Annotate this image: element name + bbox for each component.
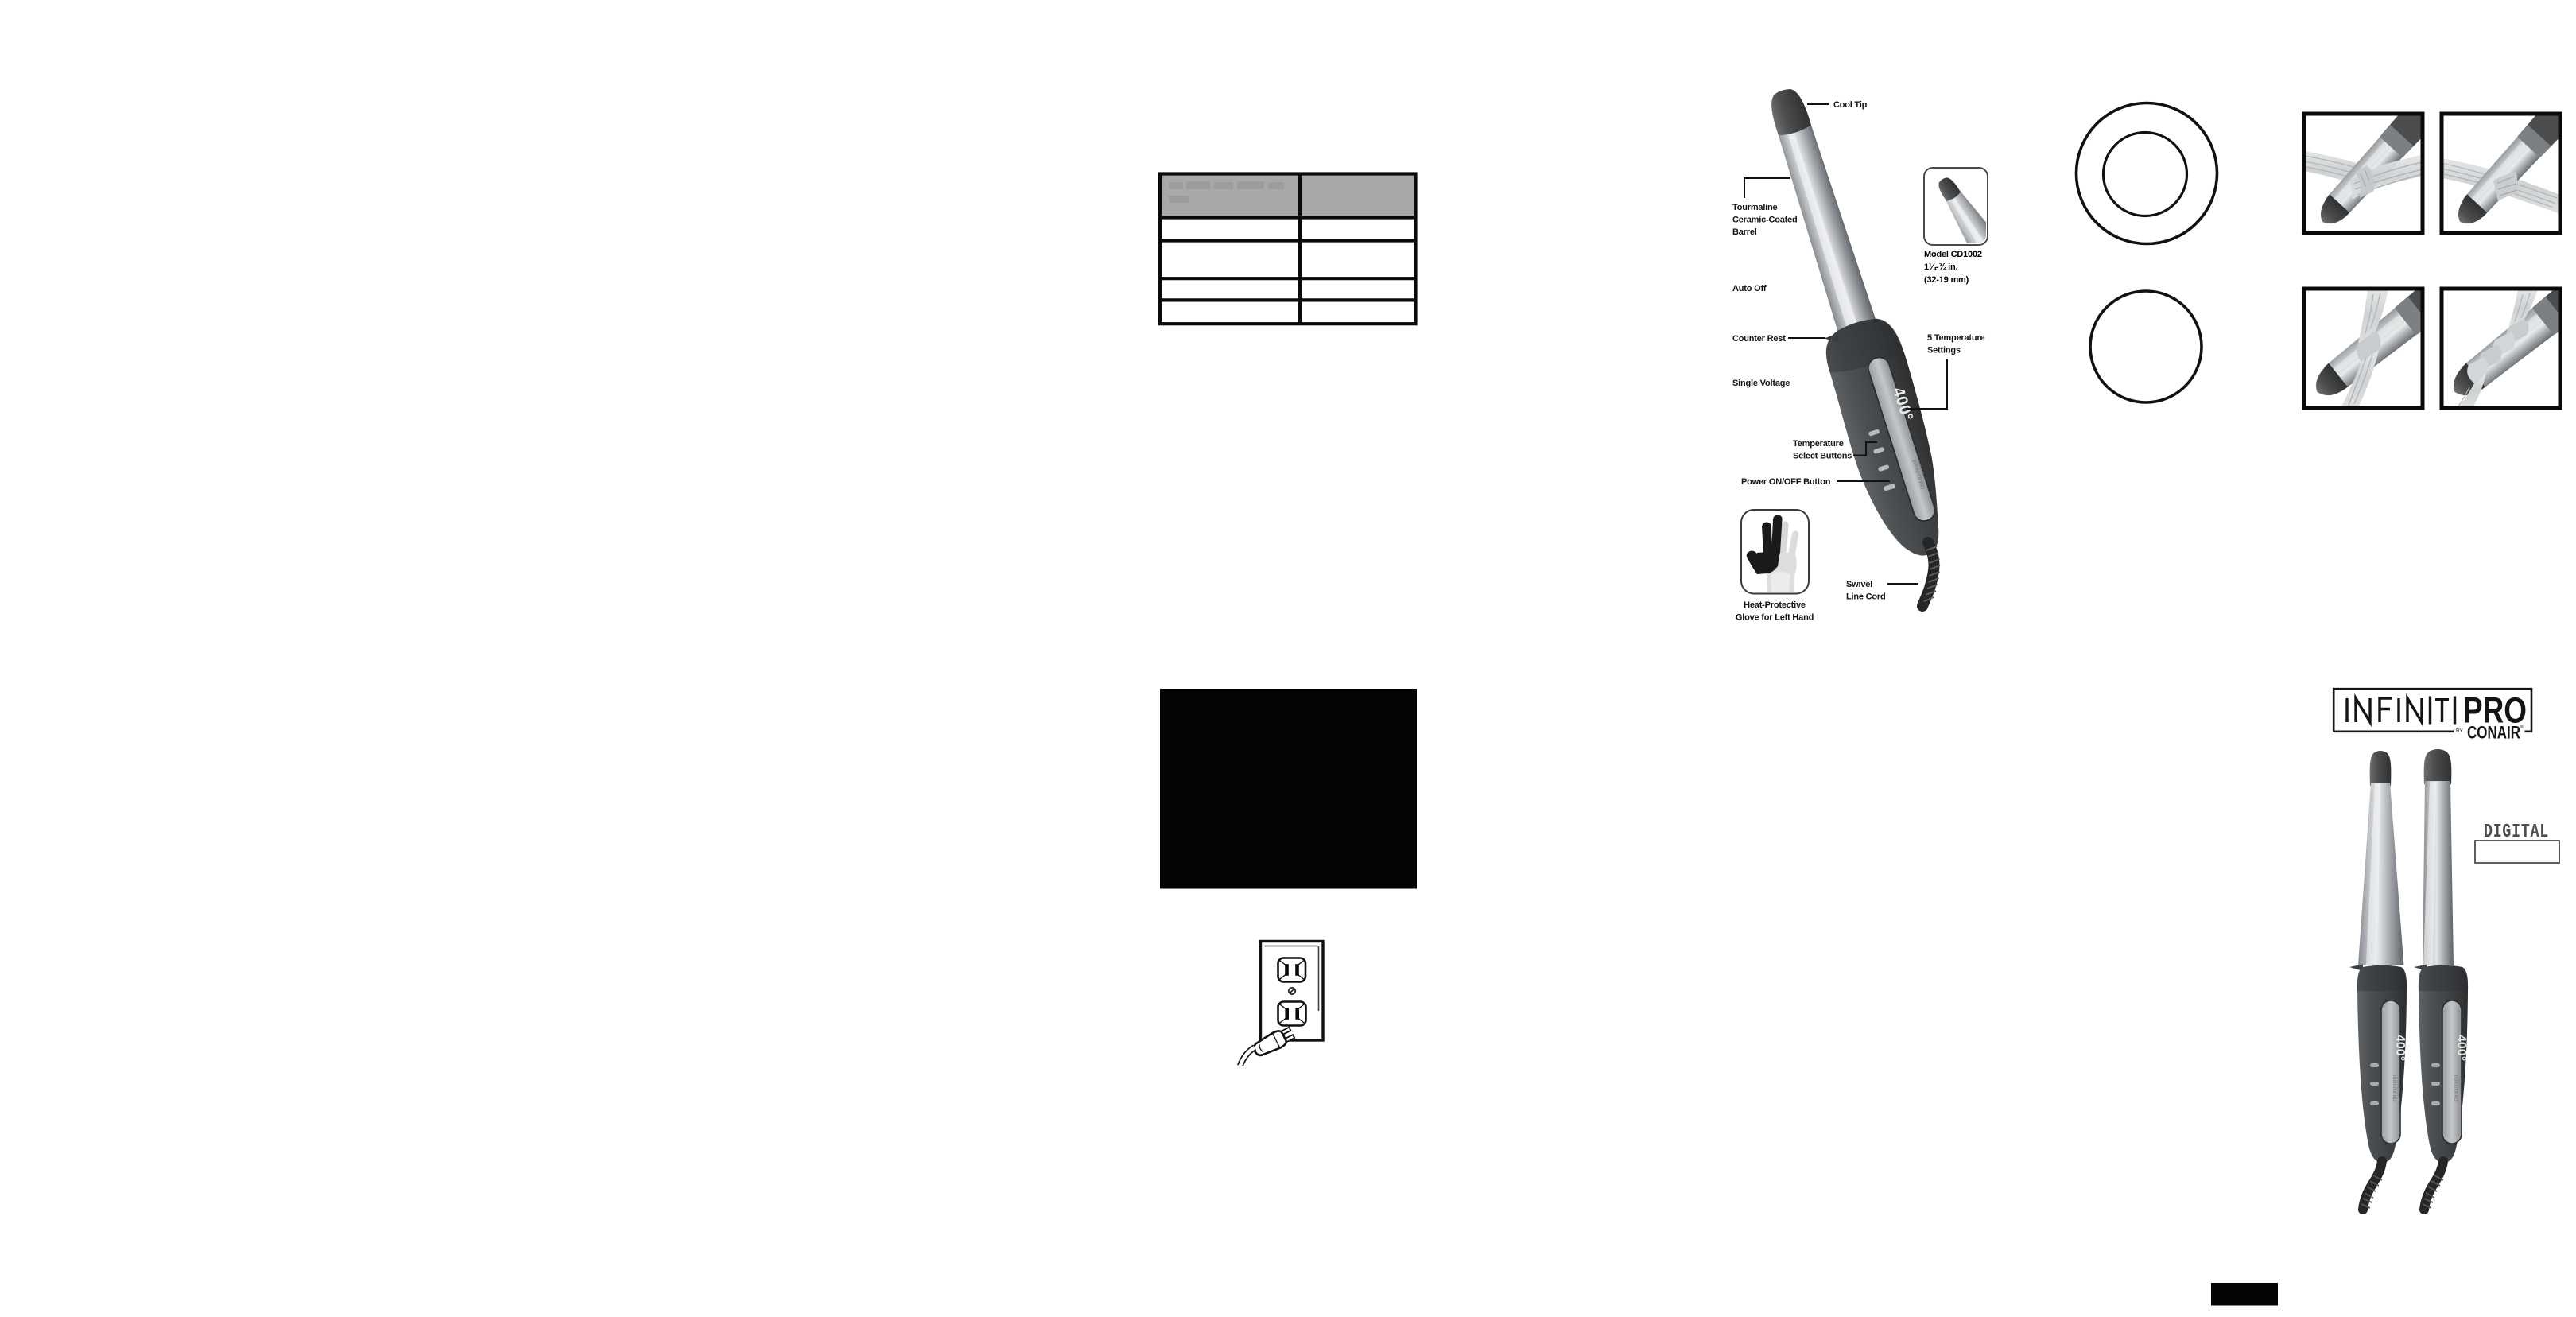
svg-text:Select Buttons: Select Buttons [1793,452,1852,461]
svg-text:CONAIR: CONAIR [2458,1077,2462,1091]
svg-text:1¼-¾ in.: 1¼-¾ in. [1924,262,1958,272]
svg-text:Cool Tip: Cool Tip [1833,100,1868,110]
svg-text:CONAIR: CONAIR [2467,723,2520,743]
svg-text:Glove for Left Hand: Glove for Left Hand [1736,613,1814,623]
svg-text:®: ® [2520,725,2524,730]
svg-text:Model CD1002: Model CD1002 [1924,250,1982,259]
svg-text:Power ON/OFF Button: Power ON/OFF Button [1741,477,1831,487]
svg-text:Heat-Protective: Heat-Protective [1744,600,1806,610]
svg-text:400°: 400° [2393,1035,2407,1061]
svg-text:Auto Off: Auto Off [1732,284,1767,293]
svg-text:Temperature: Temperature [1793,439,1844,449]
svg-text:Swivel: Swivel [1846,580,1872,589]
svg-text:Line Cord: Line Cord [1846,592,1886,602]
svg-text:INFINITIPRO: INFINITIPRO [2392,1075,2396,1101]
svg-text:DIGITAL: DIGITAL [2484,822,2549,843]
svg-text:Ceramic-Coated: Ceramic-Coated [1732,216,1798,225]
svg-text:Settings: Settings [1927,346,1961,355]
svg-text:(32-19 mm): (32-19 mm) [1924,275,1969,285]
svg-text:5 Temperature: 5 Temperature [1927,333,1984,343]
svg-text:Barrel: Barrel [1732,227,1757,237]
svg-text:INFINITIPRO: INFINITIPRO [2453,1075,2458,1101]
svg-text:Single Voltage: Single Voltage [1732,379,1790,388]
svg-text:BY: BY [2456,728,2463,734]
svg-text:400°: 400° [2454,1035,2468,1061]
svg-text:CONAIR: CONAIR [2397,1077,2401,1091]
svg-text:Counter Rest: Counter Rest [1732,334,1786,344]
svg-text:Tourmaline: Tourmaline [1732,203,1778,212]
